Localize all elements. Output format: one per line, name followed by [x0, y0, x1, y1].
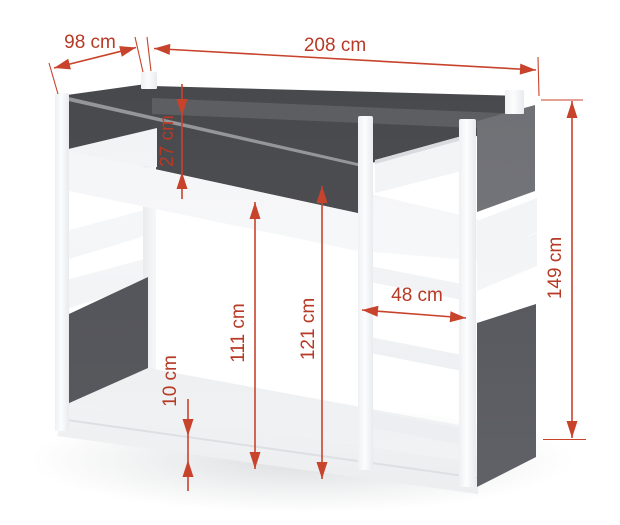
- dim-label-clearance-frame: 121 cm: [298, 294, 320, 364]
- dim-label-ladder-width: 48 cm: [388, 285, 446, 307]
- back-left-post-cap: [141, 72, 157, 89]
- ladder-left-post: [358, 116, 373, 470]
- dim-label-length: 208 cm: [299, 35, 371, 57]
- dim-label-clearance-mattress: 111 cm: [228, 298, 250, 368]
- dim-label-guard-rail-height: 27 cm: [157, 111, 179, 171]
- ladder-right-post: [459, 119, 476, 487]
- front-left-post: [55, 93, 69, 431]
- dim-label-base-height: 10 cm: [160, 351, 182, 411]
- dim-label-depth: 98 cm: [62, 32, 118, 54]
- bunk-bed-dimension-diagram: 98 cm 208 cm 27 cm 149 cm 48 cm 111 cm 1…: [0, 0, 620, 525]
- back-right-post-cap: [505, 90, 524, 114]
- dim-label-overall-height: 149 cm: [545, 233, 567, 303]
